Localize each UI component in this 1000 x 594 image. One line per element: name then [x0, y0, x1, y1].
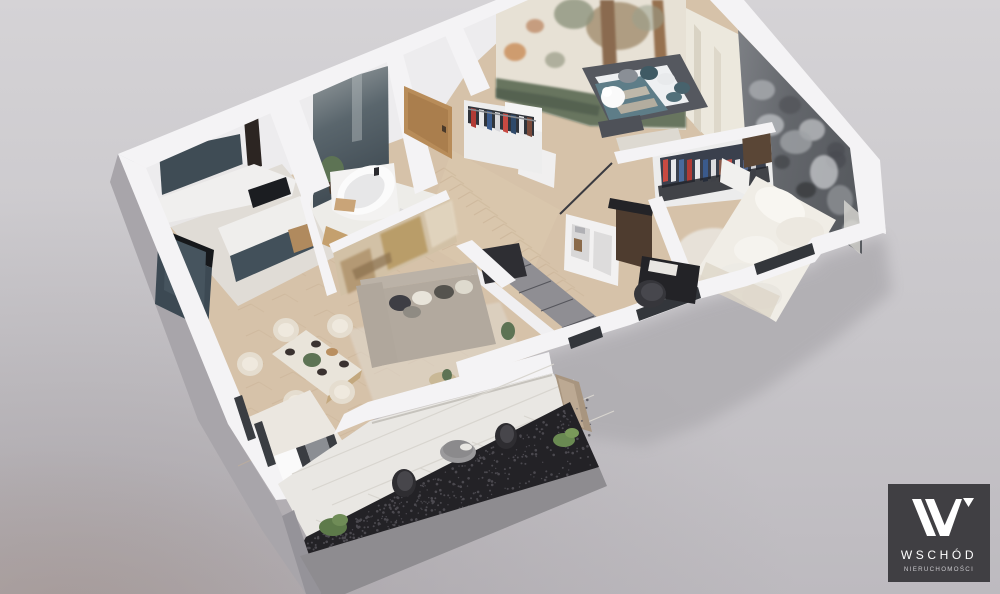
- svg-text:WSCHÓD: WSCHÓD: [901, 547, 977, 562]
- svg-text:NIERUCHOMOŚCI: NIERUCHOMOŚCI: [904, 565, 974, 573]
